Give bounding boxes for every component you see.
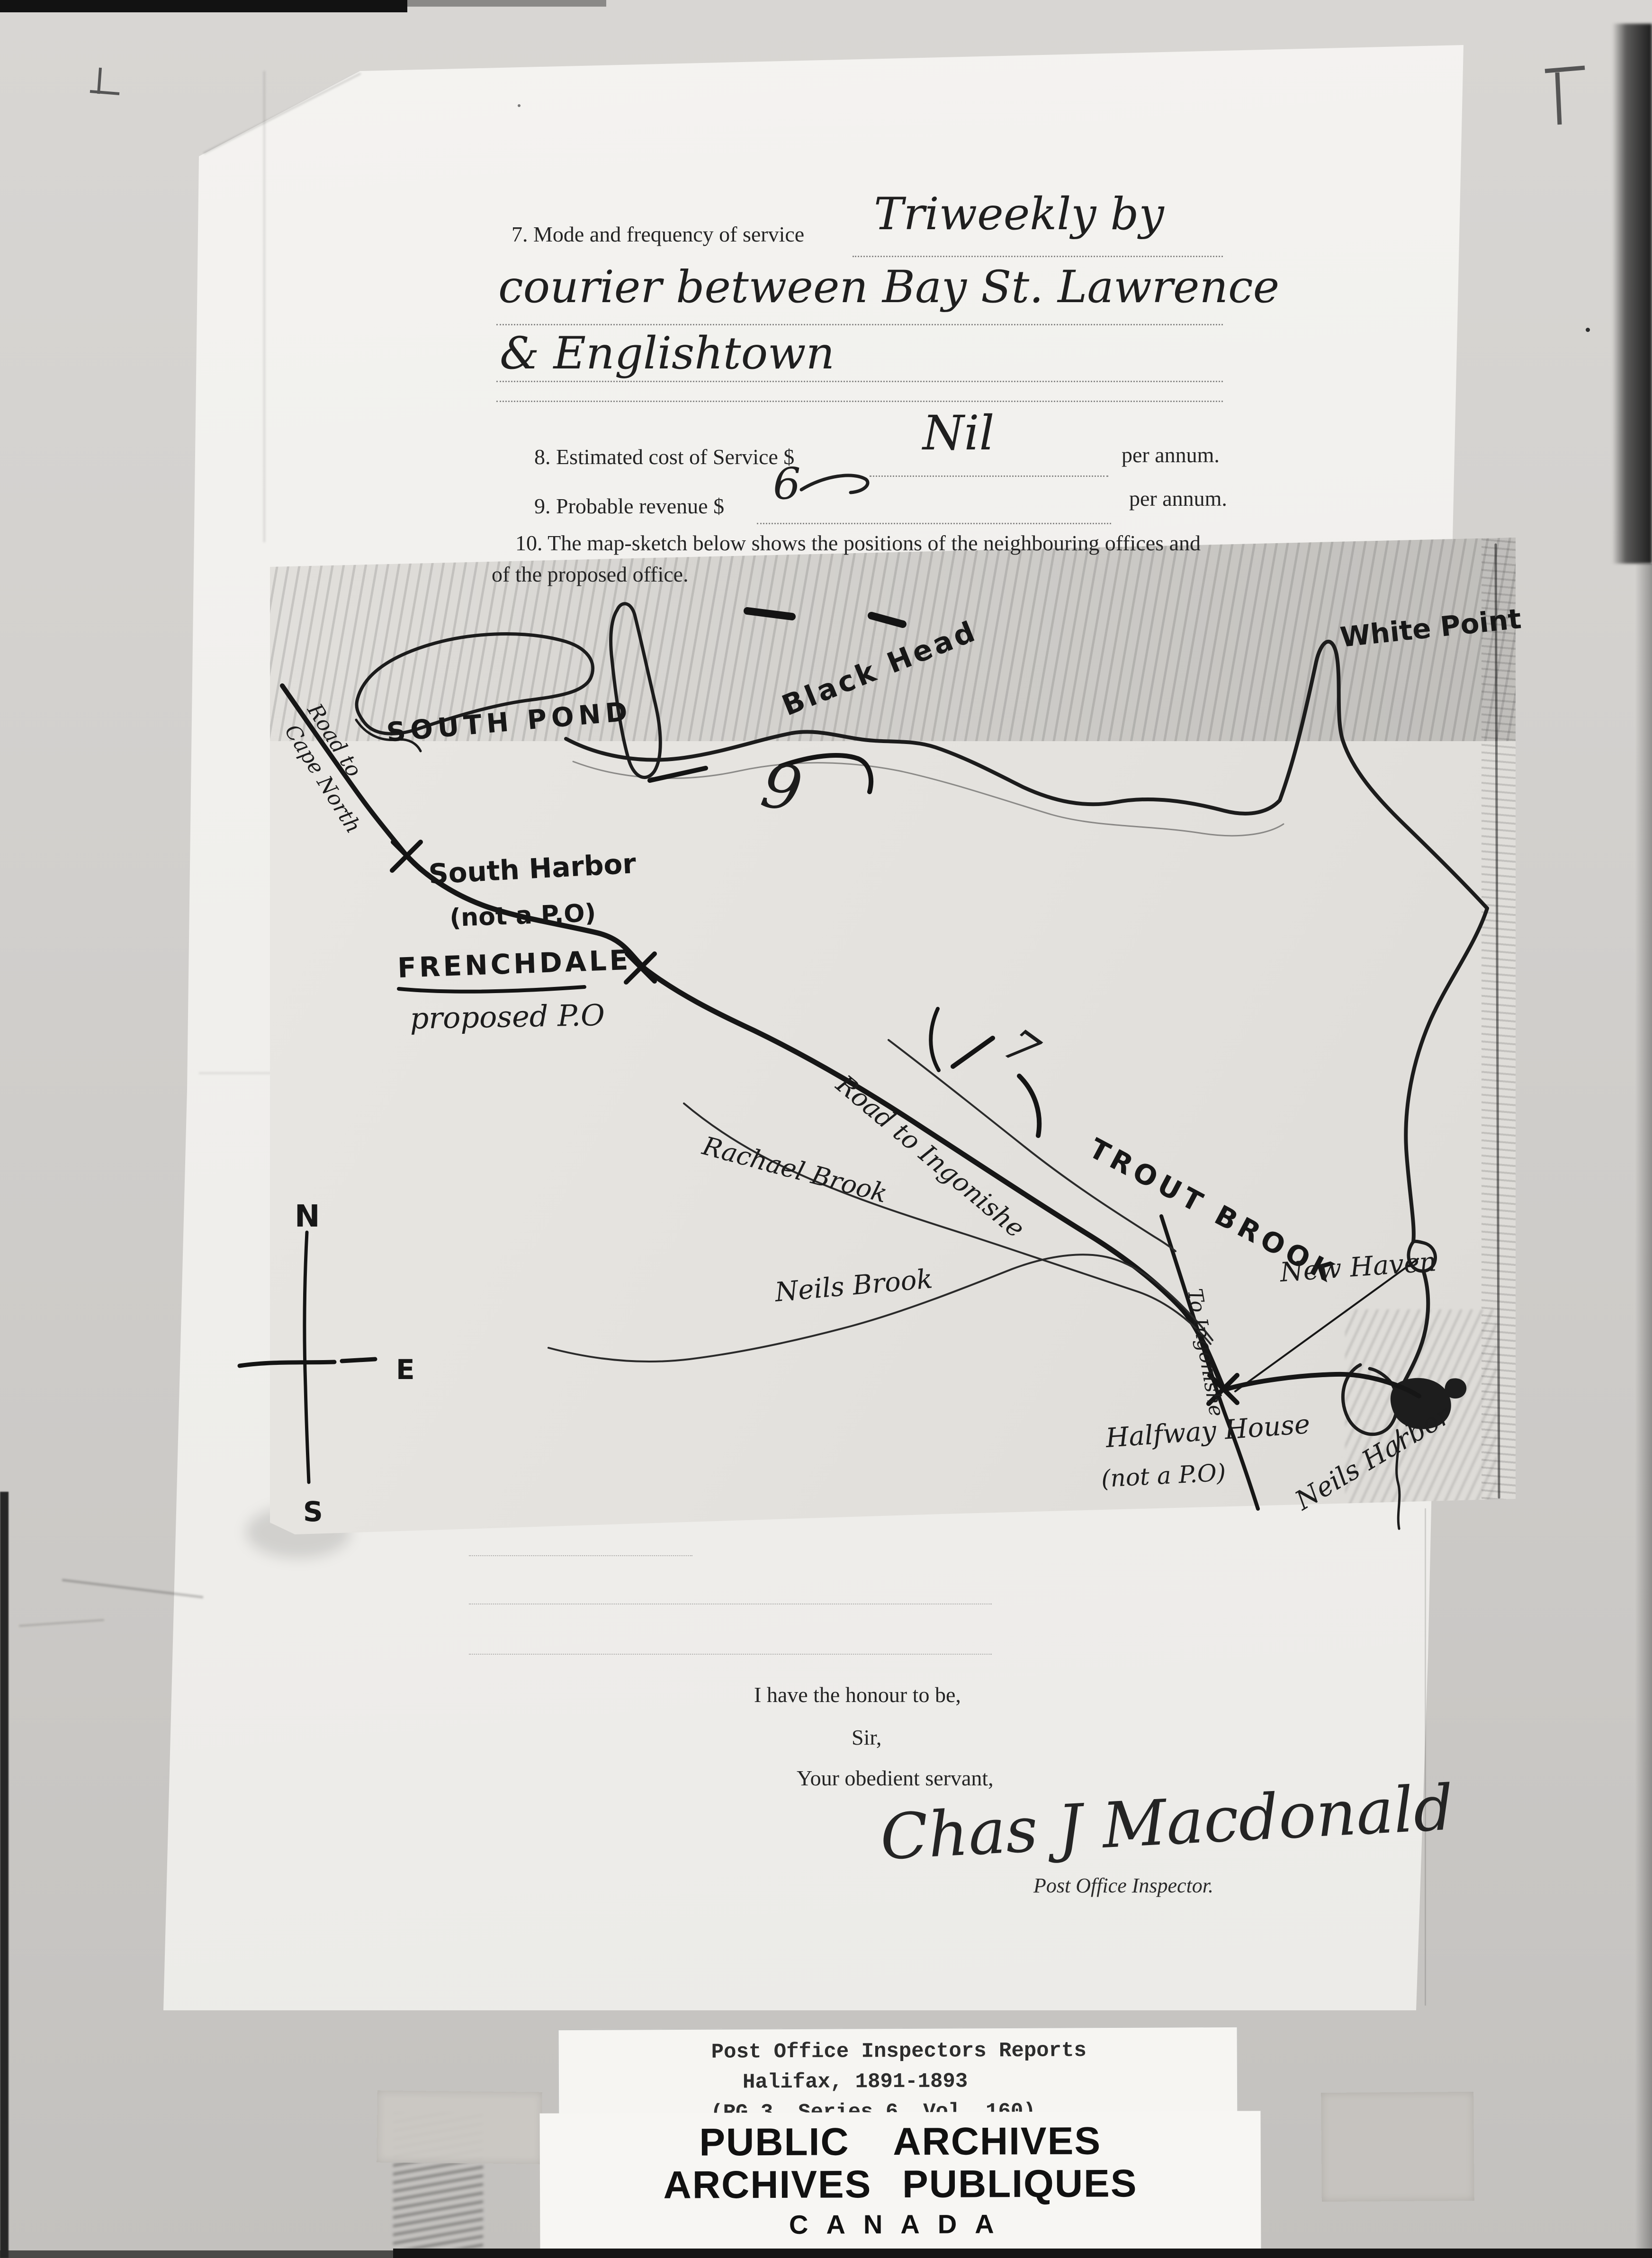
label-halfway-house: Halfway House bbox=[1104, 1409, 1311, 1454]
east-coast bbox=[1406, 908, 1487, 1242]
compass-east-label: E bbox=[396, 1353, 415, 1386]
scan-edge-top bbox=[0, 0, 407, 12]
scan-edge-right-lower bbox=[1635, 564, 1652, 2258]
top-dash-1 bbox=[747, 611, 792, 617]
mile7-dash-right bbox=[1019, 1076, 1039, 1136]
label-black-head: Black Head bbox=[777, 614, 982, 723]
main-road bbox=[406, 855, 1223, 1388]
mile-marker-7: 7 bbox=[994, 1018, 1048, 1078]
public-archives-canada: CANADA bbox=[540, 2207, 1261, 2240]
map-border-right bbox=[1496, 545, 1499, 1497]
ink-speck bbox=[1586, 328, 1590, 332]
label-neils-brook: Neils Brook bbox=[773, 1263, 934, 1308]
scan-edge-right bbox=[1612, 24, 1652, 564]
coastline-group bbox=[356, 545, 1499, 1529]
tape-left bbox=[377, 2090, 542, 2164]
public-archives-card: PUBLIC ARCHIVES ARCHIVES PUBLIQUES CANAD… bbox=[539, 2111, 1261, 2251]
scan-edge-left bbox=[0, 1492, 9, 2258]
x-mark-south-harbor bbox=[392, 842, 421, 870]
public-archives-en: PUBLIC ARCHIVES bbox=[540, 2118, 1261, 2165]
label-halfway-house-note: (not a P.O) bbox=[1101, 1459, 1227, 1493]
compass-vertical bbox=[305, 1232, 309, 1482]
ink-speck bbox=[518, 104, 521, 107]
label-rachael-brook: Rachael Brook bbox=[699, 1130, 891, 1209]
compass-south-label: S bbox=[303, 1496, 323, 1528]
public-archives-fr: ARCHIVES PUBLIQUES bbox=[540, 2161, 1261, 2208]
scan-edge-top-faint bbox=[407, 0, 606, 7]
q9-answer-swash bbox=[801, 475, 868, 493]
archive-line2: Halifax, 1891-1893 bbox=[743, 2066, 968, 2097]
coast-below-newhaven bbox=[1403, 1272, 1428, 1385]
scan-edge-bottom bbox=[393, 2249, 1652, 2258]
compass-horizontal-tip bbox=[342, 1359, 375, 1361]
mile-marker-9: 9 bbox=[756, 749, 808, 826]
archive-line1: Post Office Inspectors Reports bbox=[711, 2035, 1086, 2067]
mile7-dash-left bbox=[953, 1038, 993, 1066]
label-road-to-ingonishe: Road to Ingonishe bbox=[830, 1069, 1031, 1244]
label-south-harbor: South Harbor bbox=[428, 847, 637, 890]
top-dash-2 bbox=[871, 616, 903, 624]
label-frenchdale-proposed: proposed P.O bbox=[410, 998, 605, 1036]
label-to-ingonishe: To Ingonishe bbox=[1183, 1287, 1229, 1418]
label-south-harbor-note: (not a P.O) bbox=[449, 899, 596, 932]
north-coast bbox=[566, 642, 1487, 908]
mark-group bbox=[240, 475, 1237, 1482]
scan-edge-bottom-left bbox=[0, 2250, 393, 2258]
narrow-lake bbox=[611, 604, 661, 778]
label-neils-harbor: Neils Harbor bbox=[1289, 1399, 1457, 1517]
map-sketch-drawing: South Pond Black Head White Point Road t… bbox=[0, 0, 1652, 2258]
rachael-brook-line bbox=[684, 1103, 1211, 1344]
compass-north-label: N bbox=[295, 1199, 320, 1234]
label-frenchdale: FRENCHDALE bbox=[397, 944, 631, 984]
corner-pencil-marks bbox=[90, 68, 1585, 125]
paren-mark bbox=[931, 1009, 939, 1070]
frenchdale-underline bbox=[399, 987, 584, 992]
tape-right bbox=[1321, 2092, 1474, 2202]
scanned-document: 7. Mode and frequency of service Triweek… bbox=[0, 0, 1652, 2258]
compass-horizontal bbox=[240, 1362, 334, 1366]
